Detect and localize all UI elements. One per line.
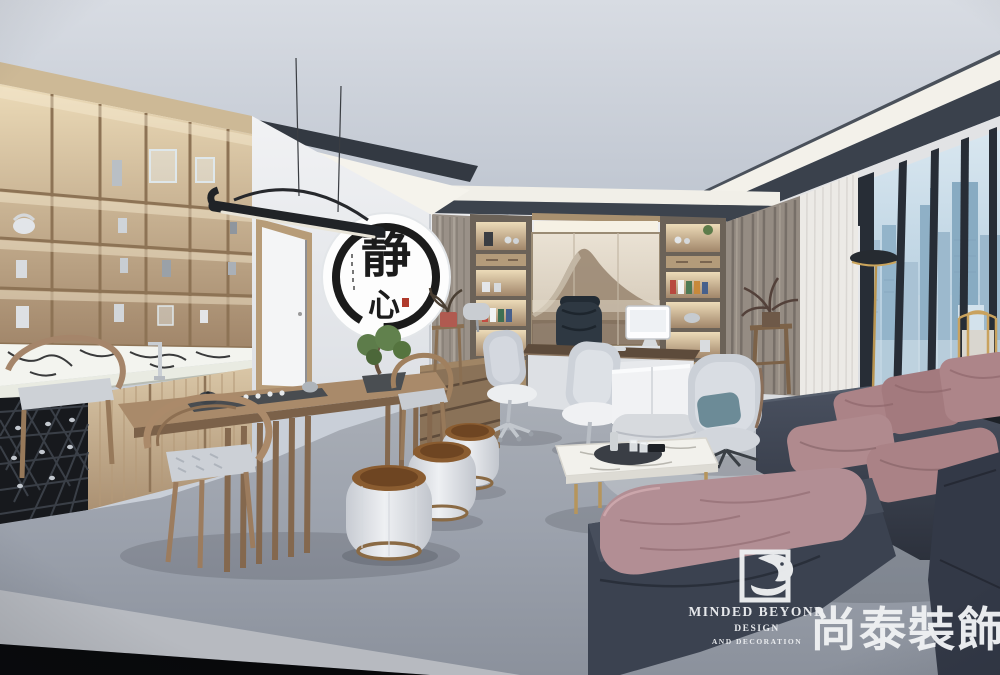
watermark-line2: DESIGN [734, 624, 779, 634]
office-interior-render: 静 心 [0, 0, 1000, 675]
vignette [0, 0, 1000, 675]
watermark-line3: AND DECORATION [712, 637, 802, 646]
watermark-brand-cn: 尚泰裝飾 [810, 603, 1000, 658]
watermark-brand-en: MINDED BEYOND [689, 604, 826, 619]
